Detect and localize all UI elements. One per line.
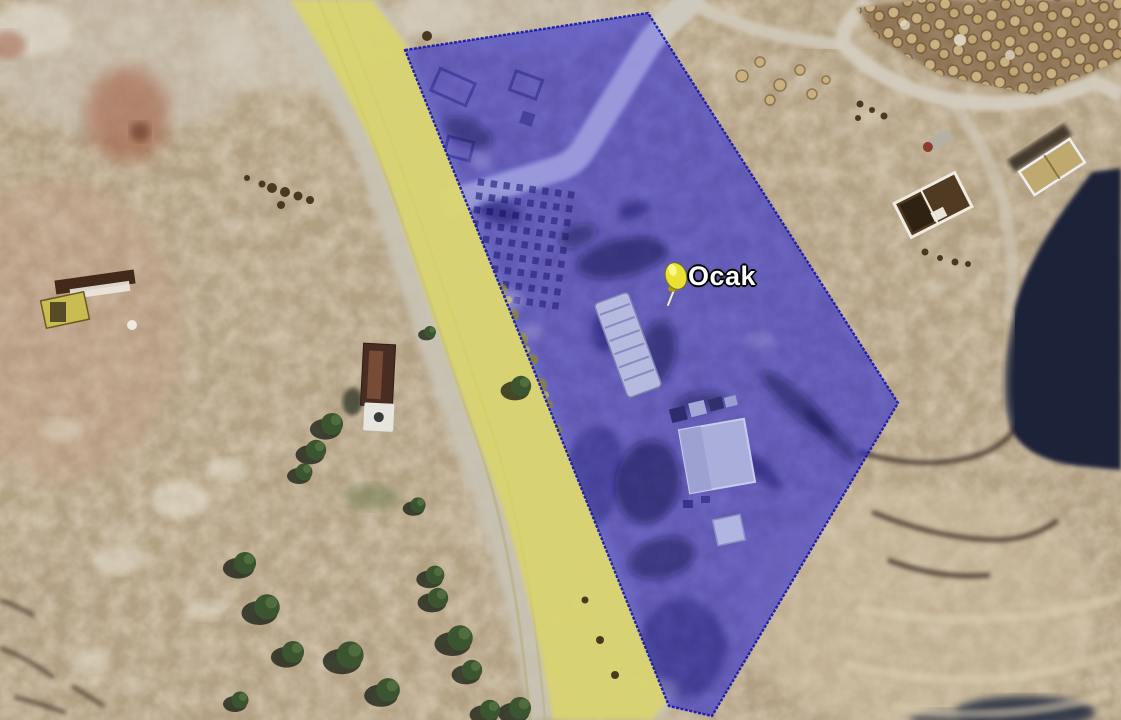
placemark-label[interactable]: Ocak <box>688 263 756 290</box>
main-building <box>679 419 755 493</box>
red-soil-patch <box>86 67 170 163</box>
map-viewport[interactable]: Ocak <box>0 0 1121 720</box>
small-building <box>713 514 746 545</box>
